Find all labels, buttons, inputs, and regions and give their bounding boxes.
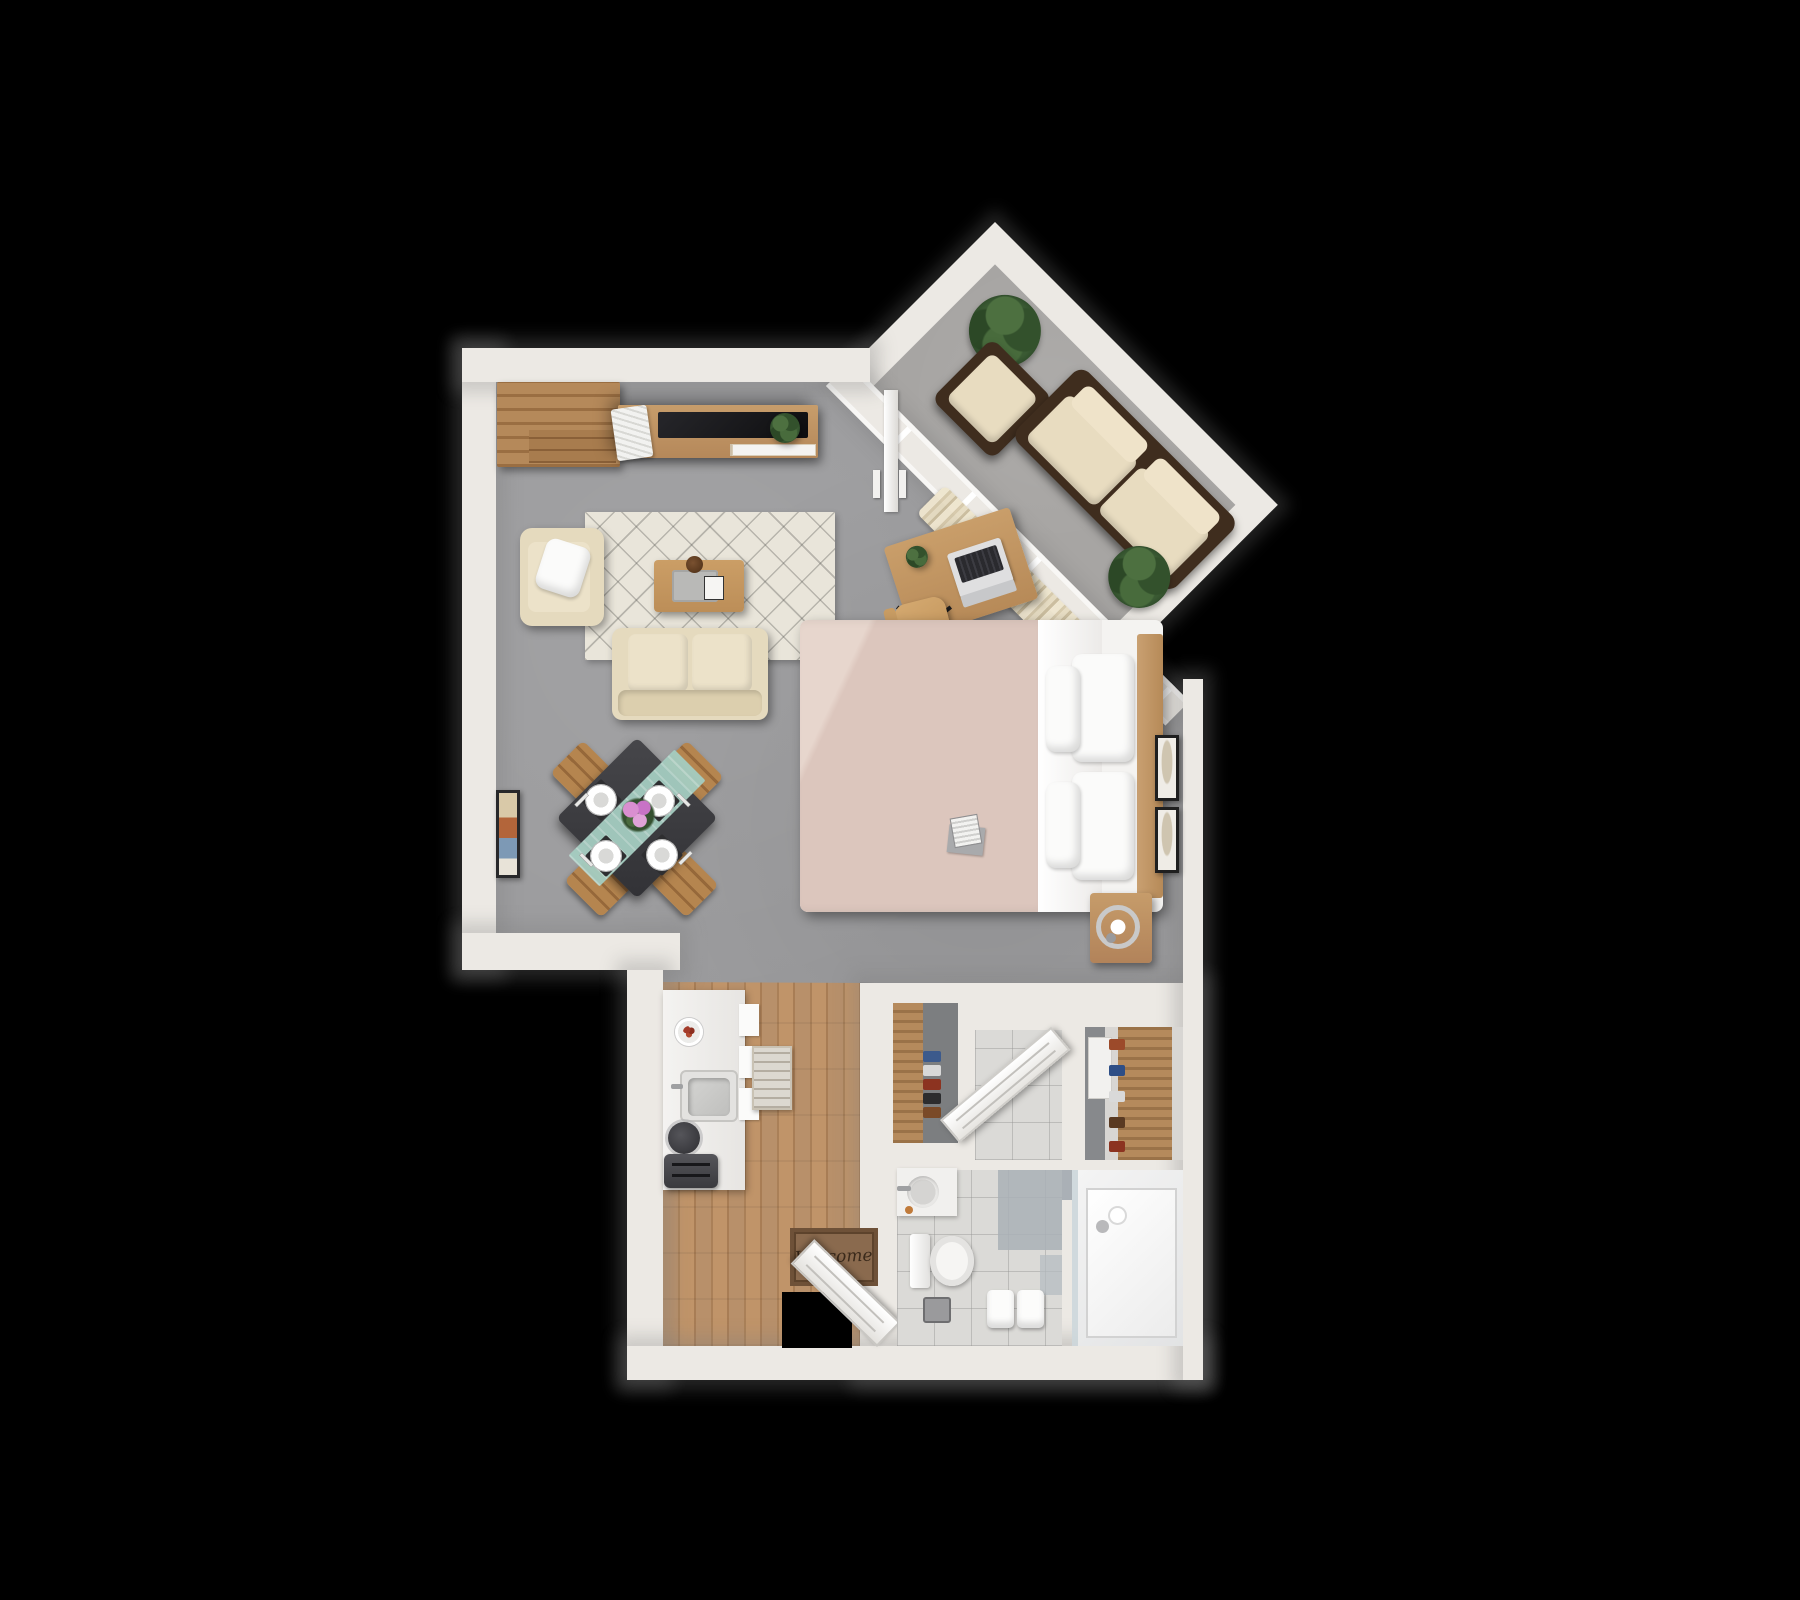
sofa-seat [628, 634, 688, 692]
shower-glass-panel [1072, 1170, 1078, 1346]
wardrobe-closet [1085, 1027, 1183, 1160]
toilet-tank [910, 1234, 930, 1288]
wall-art [496, 790, 520, 878]
radio [950, 814, 983, 848]
ring-lamp-icon [1096, 905, 1140, 949]
toilet-bowl [930, 1236, 974, 1286]
lamp-base [1106, 933, 1116, 943]
pillow [1072, 772, 1134, 880]
flower-centerpiece [620, 797, 656, 833]
wall-kitchen-left [627, 970, 663, 1380]
sofa-back [618, 690, 762, 716]
step-stool [923, 1297, 951, 1323]
kettle [668, 1122, 700, 1154]
loveseat-sofa [612, 628, 768, 720]
duvet [800, 620, 1050, 912]
towel-bench [985, 1288, 1049, 1334]
plate [591, 841, 621, 871]
wall-shelf [739, 1004, 759, 1036]
armchair [520, 528, 604, 626]
pillow [1046, 666, 1080, 752]
shower-pan [1086, 1188, 1177, 1338]
coffee-table [654, 560, 744, 612]
floor-candlesticks [873, 470, 913, 500]
sink-basin [688, 1078, 730, 1116]
wall-bottom [627, 1346, 1203, 1380]
wall-right [1183, 679, 1203, 1380]
double-bed [800, 620, 1163, 912]
floor-plan-canvas: Welcome [0, 0, 1800, 1600]
food [683, 1026, 695, 1038]
cabinet-drawers [529, 430, 616, 463]
kitchen-counter [663, 990, 745, 1190]
basin [907, 1176, 939, 1208]
gray-tile-patch [998, 1170, 1062, 1250]
plate [586, 785, 616, 815]
console-plant-icon [770, 413, 800, 443]
magazine-stack [611, 405, 654, 462]
shoe-rack [893, 1003, 923, 1143]
sofa-seat [692, 634, 752, 692]
nightstand [1090, 893, 1152, 963]
corner-cabinet [497, 382, 620, 467]
gray-tile-patch [1062, 1170, 1072, 1200]
bowl [686, 556, 703, 573]
card [704, 576, 724, 600]
desk-plant-icon [903, 543, 931, 571]
pillow [1072, 654, 1134, 762]
towel [987, 1290, 1014, 1328]
walk-in-shower [1078, 1170, 1183, 1346]
framed-art [1155, 807, 1179, 873]
wall-top [462, 348, 870, 382]
pendant-light-icon [1110, 1208, 1125, 1223]
wall-step [462, 933, 680, 970]
console-doors [730, 444, 816, 456]
faucet-icon [897, 1186, 911, 1191]
pillow [1046, 782, 1080, 868]
bathroom-vanity [897, 1168, 957, 1216]
towel [1017, 1290, 1044, 1328]
pendant-light-icon [1096, 1220, 1109, 1233]
wall-left [462, 348, 496, 970]
framed-art [1155, 735, 1179, 801]
toaster [664, 1154, 718, 1188]
tv-console [618, 405, 818, 458]
kitchen-runner-rug [752, 1046, 792, 1110]
soap [905, 1206, 913, 1214]
clothes-rack [1118, 1027, 1172, 1160]
faucet-icon [671, 1084, 683, 1089]
toilet [910, 1232, 976, 1290]
plate [647, 840, 677, 870]
